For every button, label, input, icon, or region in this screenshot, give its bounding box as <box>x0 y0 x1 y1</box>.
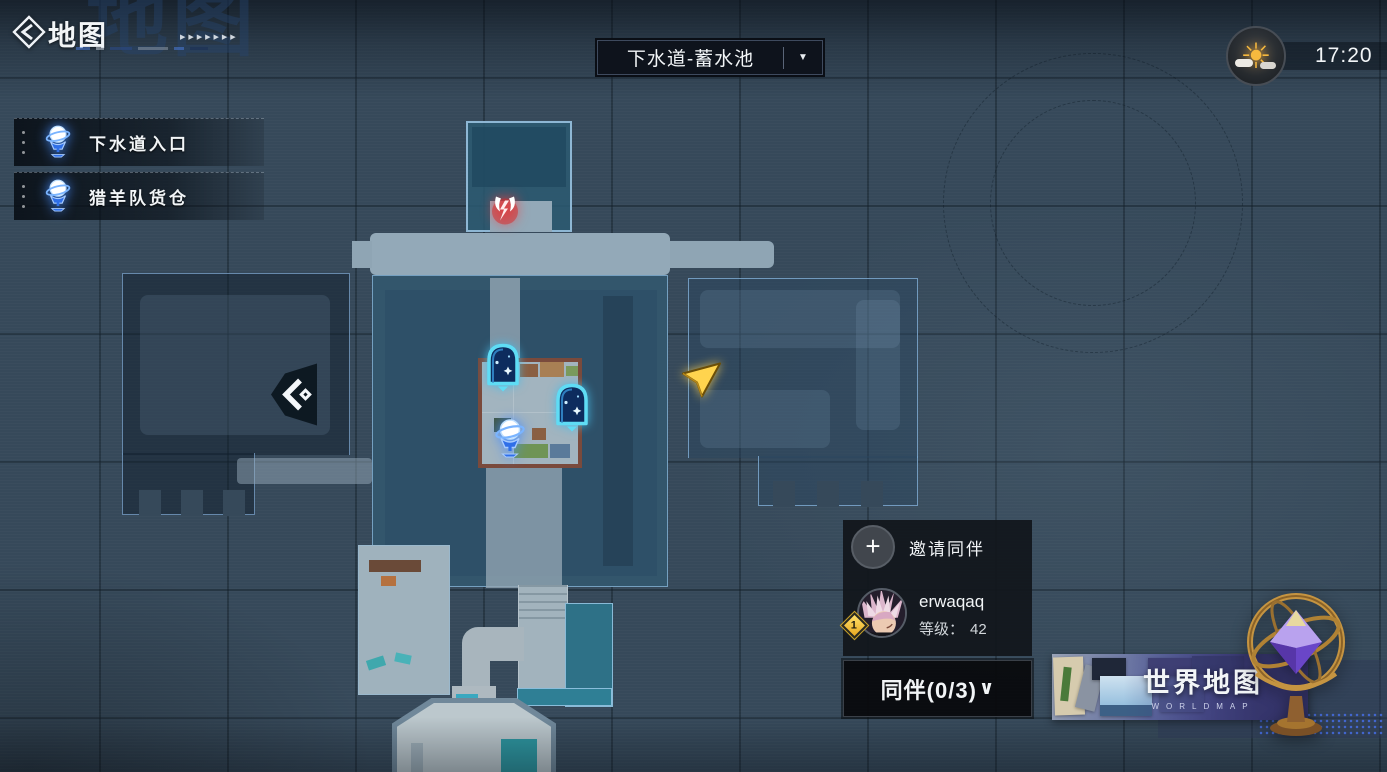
area-selector-value: 下水道-蓄水池 <box>598 44 783 71</box>
teleport-goblet-icon <box>492 416 528 458</box>
plus-icon: + <box>851 525 895 569</box>
armillary-sphere-icon[interactable] <box>1240 580 1352 743</box>
portal-gate-icon <box>551 379 593 433</box>
clock-time: 17:20 <box>1315 44 1373 68</box>
badge-number: 1 <box>851 620 857 632</box>
item-dots <box>22 185 25 208</box>
back-button[interactable] <box>10 13 48 51</box>
level-value: 42 <box>970 621 987 638</box>
map-room-southwest <box>358 545 450 695</box>
companions-expand-button[interactable]: 同伴(0/3) ∨ <box>843 660 1032 717</box>
location-item-sewer-entrance[interactable]: 下水道入口 <box>14 118 264 166</box>
map-wall-notch <box>223 490 245 516</box>
map-wall-notch <box>861 481 883 507</box>
companions-label: 同伴(0/3) <box>881 673 977 705</box>
teleport-goblet-icon <box>43 176 73 217</box>
map-wall-notch <box>139 490 161 516</box>
map-furniture <box>532 428 546 440</box>
chevron-down-icon: ▼ <box>784 52 822 63</box>
map-furniture <box>501 739 537 772</box>
map-furniture <box>540 362 564 377</box>
cloud-icon <box>1235 59 1253 67</box>
map-pool-channel <box>517 688 612 706</box>
glitch-mark <box>110 47 132 50</box>
player-name: erwaqaq <box>919 592 984 612</box>
portal-marker-a[interactable] <box>482 339 524 398</box>
teleport-goblet-icon <box>43 122 73 163</box>
map-walkway <box>237 458 372 484</box>
glitch-mark <box>96 47 104 50</box>
map-wall-shadow <box>603 296 633 566</box>
horned-beast-icon <box>486 194 524 228</box>
player-level: 等级：42 <box>919 618 987 639</box>
player-avatar[interactable] <box>857 588 907 638</box>
map-furniture <box>411 743 423 772</box>
location-label: 猎羊队货仓 <box>89 184 189 209</box>
map-water <box>472 127 566 187</box>
map-furniture <box>369 560 421 572</box>
map-room-west-lower <box>122 453 255 515</box>
player-arrow-icon <box>680 361 724 401</box>
glitch-mark <box>190 47 208 50</box>
glitch-mark <box>76 47 90 50</box>
map-room-octagon <box>397 703 551 772</box>
map-furniture <box>366 655 386 670</box>
west-exit-button[interactable] <box>269 364 317 431</box>
portal-gate-icon <box>482 339 524 393</box>
glitch-mark <box>174 47 184 50</box>
level-label: 等级： <box>919 621 964 638</box>
invite-companion-button[interactable]: + 邀请同伴 <box>843 520 1032 574</box>
map-catwalk <box>486 466 562 588</box>
map-floor-shape <box>856 300 900 430</box>
cloud-icon <box>1260 62 1276 69</box>
glitch-mark <box>138 47 168 50</box>
map-screen: 地图 地图 ▶▶▶▶▶▶▶ 下水道-蓄水池 ▼ 17:20 ☀ <box>0 0 1387 772</box>
map-furniture <box>566 366 578 376</box>
avatar-portrait <box>859 590 907 638</box>
area-selector-dropdown[interactable]: 下水道-蓄水池 ▼ <box>597 40 823 75</box>
invite-label: 邀请同伴 <box>909 535 985 560</box>
map-wall-notch <box>817 481 839 507</box>
location-label: 下水道入口 <box>89 130 189 155</box>
weather-button[interactable]: ☀ <box>1226 26 1286 86</box>
back-diamond-icon <box>11 14 47 50</box>
portal-marker-b[interactable] <box>551 379 593 438</box>
map-furniture <box>381 576 396 586</box>
map-platform-arm-west <box>352 241 372 268</box>
map-ladder <box>519 585 567 625</box>
map-platform-arm-east <box>670 241 774 268</box>
map-furniture <box>394 652 412 664</box>
party-panel: + 邀请同伴 1 erwaqaq <box>843 520 1032 656</box>
title-decoration: ▶▶▶▶▶▶▶ <box>180 33 239 41</box>
west-exit-chevron-icon <box>269 364 317 426</box>
location-item-warehouse[interactable]: 猎羊队货仓 <box>14 172 264 220</box>
title-watermark: 地图 <box>86 0 258 62</box>
enemy-marker[interactable] <box>486 194 524 233</box>
title-glitch-marks <box>76 47 208 51</box>
map-wall-notch <box>181 490 203 516</box>
map-wall-notch <box>773 481 795 507</box>
party-member-row[interactable]: 1 erwaqaq 等级：42 <box>843 574 1032 656</box>
item-dots <box>22 131 25 154</box>
map-platform-band <box>370 233 670 275</box>
player-position-arrow[interactable] <box>680 361 724 406</box>
waypoint-marker[interactable] <box>492 416 528 463</box>
map-corridor-south <box>518 585 568 693</box>
map-furniture <box>550 444 570 458</box>
chevron-down-icon: ∨ <box>979 677 994 700</box>
map-room-east-lower <box>758 456 918 506</box>
